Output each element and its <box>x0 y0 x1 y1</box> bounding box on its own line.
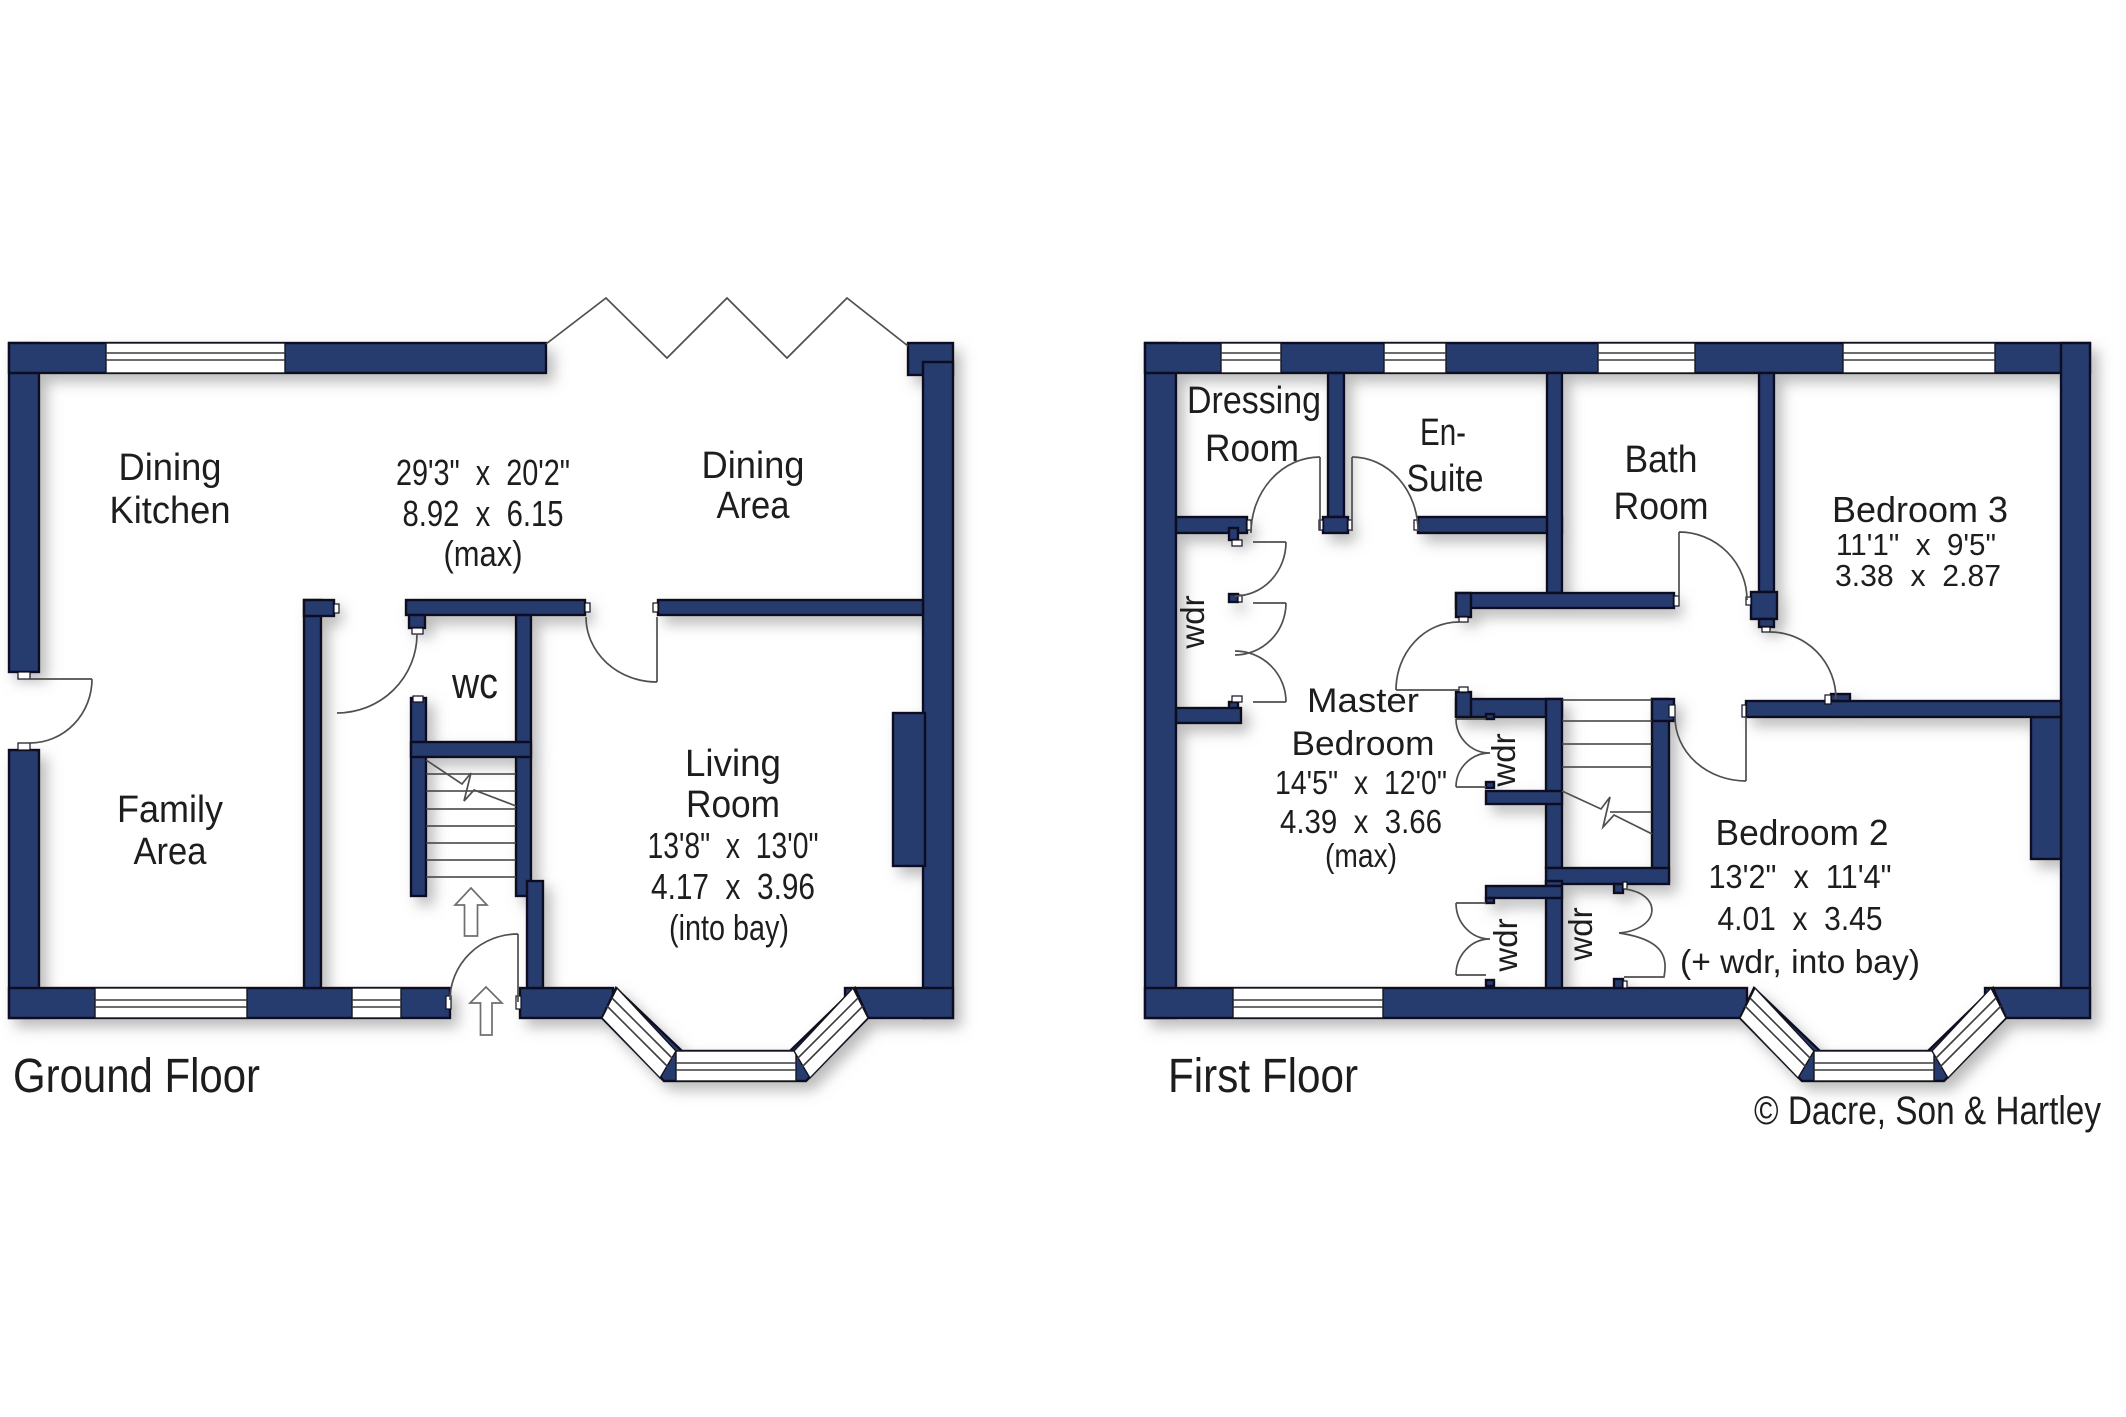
svg-text:14'5" x 12'0": 14'5" x 12'0" <box>1275 764 1447 801</box>
svg-text:4.39 x 3.66: 4.39 x 3.66 <box>1280 803 1442 840</box>
svg-text:3.38 x 2.87: 3.38 x 2.87 <box>1835 558 2001 593</box>
svg-text:Area: Area <box>717 485 791 527</box>
svg-text:wdr: wdr <box>1562 907 1599 961</box>
svg-text:Bedroom: Bedroom <box>1292 725 1435 763</box>
svg-text:13'8" x 13'0": 13'8" x 13'0" <box>648 825 819 866</box>
svg-text:11'1" x 9'5": 11'1" x 9'5" <box>1836 527 1996 562</box>
svg-text:Room: Room <box>1614 486 1709 528</box>
svg-text:Room: Room <box>686 784 780 826</box>
svg-text:Dining: Dining <box>119 447 222 489</box>
svg-text:4.17 x 3.96: 4.17 x 3.96 <box>651 866 815 907</box>
svg-text:Kitchen: Kitchen <box>110 490 231 532</box>
svg-text:4.01 x 3.45: 4.01 x 3.45 <box>1718 900 1883 937</box>
svg-text:First Floor: First Floor <box>1168 1050 1358 1103</box>
svg-text:wc: wc <box>451 659 498 708</box>
svg-text:29'3" x 20'2": 29'3" x 20'2" <box>396 452 570 493</box>
svg-text:Dressing: Dressing <box>1187 380 1321 422</box>
svg-text:Area: Area <box>134 831 208 873</box>
svg-text:Bedroom 2: Bedroom 2 <box>1716 812 1889 853</box>
svg-text:(into bay): (into bay) <box>669 907 789 948</box>
svg-text:Dining: Dining <box>702 445 805 487</box>
svg-text:Master: Master <box>1307 682 1419 720</box>
svg-text:Ground Floor: Ground Floor <box>13 1050 260 1103</box>
svg-text:8.92 x 6.15: 8.92 x 6.15 <box>403 493 564 534</box>
svg-text:wdr: wdr <box>1485 733 1522 787</box>
svg-text:Family: Family <box>117 789 223 831</box>
svg-text:wdr: wdr <box>1174 595 1211 649</box>
svg-text:(+ wdr, into bay): (+ wdr, into bay) <box>1680 943 1920 980</box>
svg-text:13'2" x 11'4": 13'2" x 11'4" <box>1709 858 1892 895</box>
svg-text:Room: Room <box>1205 428 1299 470</box>
svg-text:(max): (max) <box>444 533 523 574</box>
svg-text:En-: En- <box>1420 412 1466 454</box>
svg-text:© Dacre, Son & Hartley: © Dacre, Son & Hartley <box>1754 1089 2101 1133</box>
svg-text:(max): (max) <box>1325 837 1397 874</box>
svg-text:wdr: wdr <box>1487 918 1524 972</box>
svg-text:Living: Living <box>685 743 781 785</box>
svg-text:Suite: Suite <box>1407 458 1484 500</box>
svg-text:Bedroom 3: Bedroom 3 <box>1832 489 2008 530</box>
svg-text:Bath: Bath <box>1625 439 1698 481</box>
